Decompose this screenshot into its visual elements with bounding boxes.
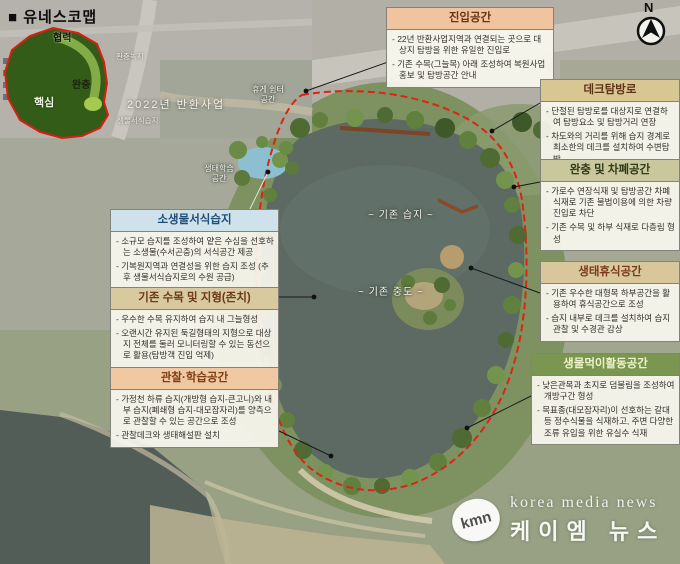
watermark-text: korea media news 케이엠 뉴스 [510,494,665,546]
callout-title: 데크탐방로 [541,80,679,102]
callout-bullets: 낮은관목과 초지로 덤불림을 조성하여 개방구간 형성 목표종(대모잠자리)이 … [532,376,679,444]
inset-label-core: 핵심 [34,94,54,110]
callout-bullet: 오랜시간 유지된 둑길형태의 지형으로 대상지 전체를 둘러 모니터링할 수 있… [116,328,274,362]
callout-bullet: 습지 내부로 데크를 설치하여 습지 관찰 및 수경관 감상 [546,313,675,335]
callout-bullets: 가로수 연장식재 및 탐방공간 차폐식재로 기존 불법이용에 의한 차량진입로 … [541,182,679,250]
callout-buffer-screen-space: 완충 및 차폐공간 가로수 연장식재 및 탐방공간 차폐식재로 기존 불법이용에… [540,159,680,251]
callout-title: 소생물서식습지 [111,210,278,232]
callout-bullet: 목표종(대모잠자리)이 선호하는 갈대 등 정수식물을 식재하고, 주변 다양한… [537,405,675,439]
callout-eco-rest-space: 생태휴식공간 기존 우수한 대형목 하부공간을 활용하여 휴식공간으로 조성 습… [540,261,680,342]
callout-bullet: 우수한 수목 유지하여 습지 내 그늘형성 [116,314,274,325]
label-line: 휴게 쉼터 [252,85,284,94]
callout-title: 완충 및 차폐공간 [541,160,679,182]
inset-buffer-pocket [84,97,102,111]
label-line: 공간 [212,174,227,183]
large-tree-rest-spot [440,245,464,269]
watermark-kmn: kmn korea media news 케이엠 뉴스 [452,494,678,546]
news-figure-wetland-plan: ■ 유네스코맵 협력 완충 핵심 완충녹지 2022년 반환사업 생물서식습지 … [0,0,680,564]
callout-bullets: 기존 우수한 대형목 하부공간을 활용하여 휴식공간으로 조성 습지 내부로 데… [541,284,679,341]
label-existing-wetland: ~ 기존 습지 ~ [336,206,466,221]
callout-bullets: 소규모 습지를 조성하여 얕은 수심을 선호하는 소생물(수서곤충)의 서식공간… [111,232,278,289]
callout-existing-trees-terrain: 기존 수목 및 지형(존치) 우수한 수목 유지하여 습지 내 그늘형성 오랜시… [110,287,279,368]
compass-north-label: N [644,0,653,15]
callout-bullets: 가정천 하류 습지(개방형 습지-큰고니)와 내부 습지(폐쇄형 습지-대모잠자… [111,390,278,447]
callout-bullet: 기복원지역과 연결성을 위한 습지 조성 (추후 생물서식습지로의 수원 공급) [116,261,274,283]
kmn-logo-text: kmn [459,508,493,532]
callout-bullet: 관찰데크와 생태해설판 설치 [116,430,274,441]
inset-label-buffer-green: 완충녹지 [116,51,144,62]
callout-bullet: 기존 수목 및 하부 식재로 다층림 형성 [546,222,675,244]
label-rest-space: 휴게 쉼터 공간 [240,85,296,105]
callout-title: 기존 수목 및 지형(존치) [111,288,278,310]
callout-observe-learn-space: 관찰·학습공간 가정천 하류 습지(개방형 습지-큰고니)와 내부 습지(폐쇄형… [110,367,279,448]
callout-small-creature-wetland: 소생물서식습지 소규모 습지를 조성하여 얕은 수심을 선호하는 소생물(수서곤… [110,209,279,290]
callout-feeding-activity-space: 생물먹이활동공간 낮은관목과 초지로 덤불림을 조성하여 개방구간 형성 목표종… [531,353,680,445]
label-existing-island: ~ 기존 중도 ~ [326,283,456,298]
callout-bullets: 우수한 수목 유지하여 습지 내 그늘형성 오랜시간 유지된 둑길형태의 지형으… [111,310,278,367]
callout-title: 생태휴식공간 [541,262,679,284]
callout-bullet: 22년 반환사업지역과 연결되는 곳으로 대상지 탐방을 위한 유일한 진입로 [392,34,549,56]
inset-label-project-2022: 2022년 반환사업 [127,96,225,112]
callout-title: 생물먹이활동공간 [532,354,679,376]
callout-bullet: 낮은관목과 초지로 덤불림을 조성하여 개방구간 형성 [537,380,675,402]
watermark-korean: 케이엠 뉴스 [510,514,665,546]
lake-highlight [280,165,490,295]
callout-entry-space: 진입공간 22년 반환사업지역과 연결되는 곳으로 대상지 탐방을 위한 유일한… [386,7,554,88]
callout-bullet: 가정천 하류 습지(개방형 습지-큰고니)와 내부 습지(폐쇄형 습지-대모잠자… [116,394,274,428]
inset-label-bio-habitat: 생물서식습지 [117,115,158,126]
callout-bullet: 가로수 연장식재 및 탐방공간 차폐식재로 기존 불법이용에 의한 차량진입로 … [546,186,675,220]
callout-title: 진입공간 [387,8,553,30]
callout-title: 관찰·학습공간 [111,368,278,390]
inset-label-cooperation: 협력 [53,29,71,44]
watermark-english: korea media news [510,494,665,512]
kmn-logo: kmn [447,494,504,547]
callout-bullet: 기존 우수한 대형목 하부공간을 활용하여 휴식공간으로 조성 [546,288,675,310]
label-line: 공간 [261,95,276,104]
callout-bullet: 기존 수목(그늘목) 아래 조성하여 복원사업 홍보 및 탐방공간 안내 [392,59,549,81]
callout-deck-trail: 데크탐방로 단절된 탐방로를 대상지로 연결하여 탐방요소 및 탐방거리 연장 … [540,79,680,171]
label-eco-learning-space: 생태학습 공간 [193,164,245,184]
callout-bullets: 22년 반환사업지역과 연결되는 곳으로 대상지 탐방을 위한 유일한 진입로 … [387,30,553,87]
inset-title: ■ 유네스코맵 [8,6,97,27]
inset-label-buffer: 완충 [72,76,90,91]
label-line: 생태학습 [204,164,233,173]
callout-bullet: 단절된 탐방로를 대상지로 연결하여 탐방요소 및 탐방거리 연장 [546,106,675,128]
north-arrow-icon [638,18,664,44]
callout-bullet: 소규모 습지를 조성하여 얕은 수심을 선호하는 소생물(수서곤충)의 서식공간… [116,236,274,258]
